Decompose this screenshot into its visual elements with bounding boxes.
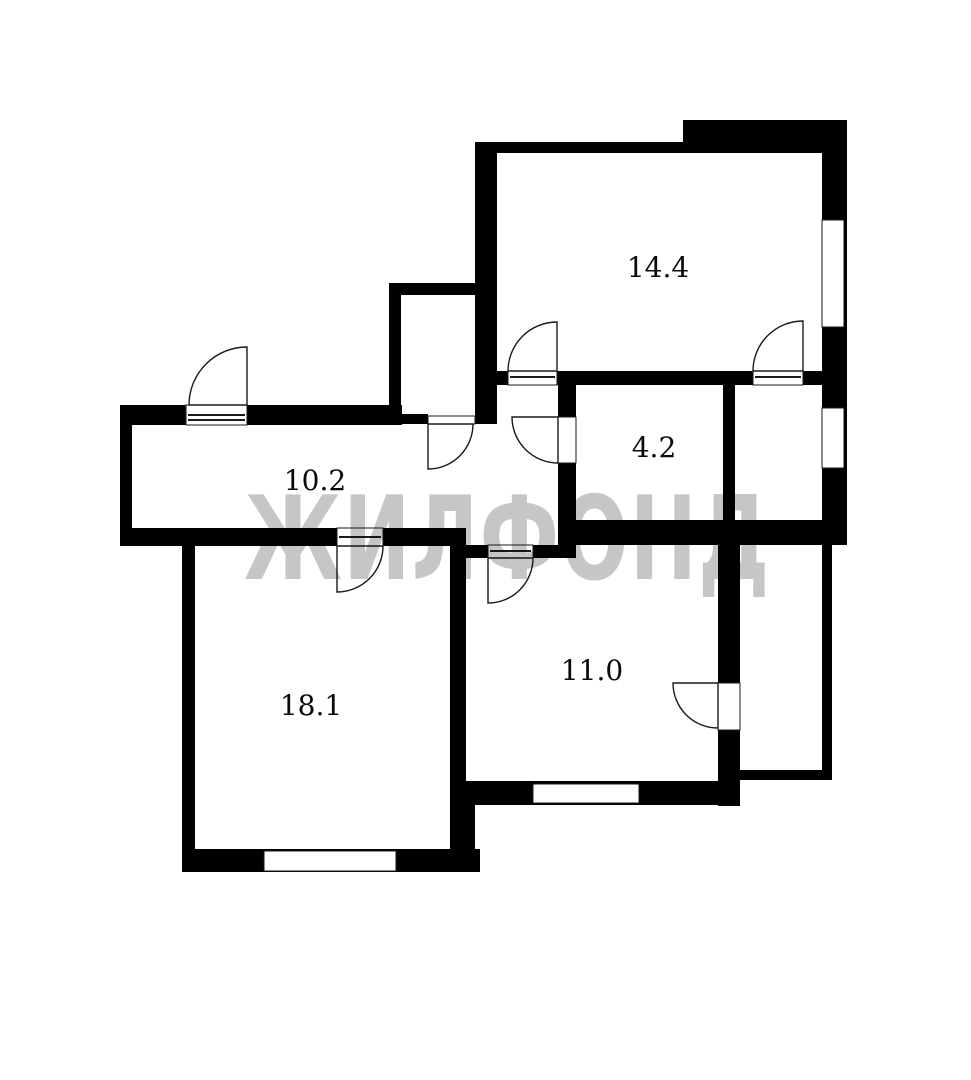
floor-plan-page: 14.4 4.2 10.2 18.1 11.0 ЖИЛФОНД [0,0,971,1080]
wall-loggia-bottom [740,770,832,780]
room-14-left-door-arc [508,322,557,371]
window-right-lower-outer-line [844,408,847,468]
room-14-right-door-arc [753,321,803,371]
room-label-4-2: 4.2 [632,431,677,464]
loggia-door-jamb [718,683,740,730]
entrance-sill-line-1 [188,414,245,416]
floor-plan-drawing: 14.4 4.2 10.2 18.1 11.0 [0,0,971,1080]
wall-closet-top [389,283,477,295]
wall-hallway-top [120,405,402,425]
window-right-upper [822,220,844,327]
entrance-door-arc [189,347,247,405]
window-room-11 [533,784,639,803]
room-4-door-jamb [558,417,576,463]
wall-hallway-left [120,405,132,546]
room-18-sill-line [339,536,381,538]
wall-connector-right-18 [450,781,475,872]
wall-loggia-right-thin [822,545,832,780]
wall-right-exterior [822,153,847,545]
wall-band-above-loggia [558,520,847,545]
window-room-18 [264,851,396,871]
closet-door-arc [428,424,473,469]
room-label-10-2: 10.2 [284,464,346,497]
room-11-sill-line [490,550,531,552]
wall-top-thick [683,120,847,153]
wall-room-18-left [182,528,195,872]
room-label-11-0: 11.0 [561,654,623,687]
window-right-lower [822,408,844,468]
loggia-door-arc [673,683,718,728]
wall-hallway-bottom [120,528,466,546]
wall-closet-left [389,283,401,414]
wall-top-thin [475,142,683,153]
wall-divider-18-11 [450,528,466,806]
wall-room-4-right [723,385,735,520]
room-11-door-arc [488,558,533,603]
closet-door-sill [428,416,475,424]
wall-closet-bottom [401,414,428,424]
room-4-door-arc [512,417,558,463]
room-14-left-sill-line [510,376,555,378]
entrance-sill-line-2 [188,419,245,421]
room-18-door-arc [337,546,383,592]
window-right-upper-outer-line [844,220,847,327]
room-label-18-1: 18.1 [280,689,342,722]
walls-layer [120,120,847,872]
wall-room-11-right [718,545,740,806]
room-label-14-4: 14.4 [627,251,689,284]
room-14-right-sill-line [755,376,801,378]
wall-left-of-room-14 [475,142,497,424]
